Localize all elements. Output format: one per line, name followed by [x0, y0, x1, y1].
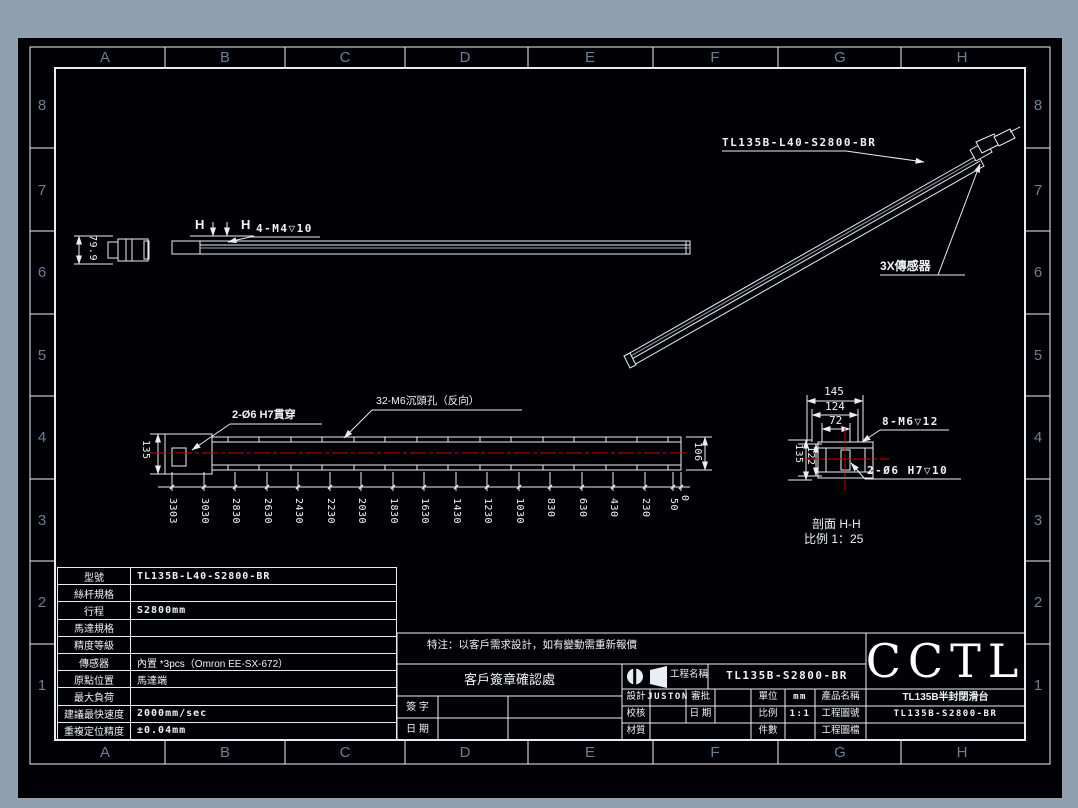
zone-right-6: 6	[1028, 264, 1048, 281]
spec-label: 重複定位精度	[58, 723, 131, 739]
spec-label: 行程	[58, 602, 131, 618]
zone-top-a: A	[95, 49, 115, 66]
zone-right-3: 3	[1028, 512, 1048, 529]
chain-dim: 430	[607, 498, 619, 518]
zone-top-g: G	[830, 49, 850, 66]
table-row: 精度等級	[58, 637, 396, 654]
plan-hole-label: 2-Ø6 H7貫穿	[232, 409, 296, 421]
chain-dim: 2430	[292, 498, 304, 524]
spec-label: 精度等級	[58, 637, 131, 653]
spec-label: 型號	[58, 568, 131, 584]
zone-top-c: C	[335, 49, 355, 66]
spec-value: 內置 *3pcs（Omron EE-SX-672）	[131, 654, 396, 670]
table-row: 重複定位精度±0.04mm	[58, 723, 396, 739]
scale-label: 比例	[751, 706, 785, 723]
spec-value: 2000mm/sec	[131, 706, 396, 722]
design-label: 設計	[622, 689, 650, 706]
zone-bottom-b: B	[215, 744, 235, 761]
unit-label: 單位	[751, 689, 785, 706]
chain-dim: 1830	[387, 498, 399, 524]
drawing-no-value: TL135B-S2800-BR	[866, 706, 1025, 723]
cctl-logo: CCTL	[866, 633, 1025, 689]
table-row: 型號TL135B-L40-S2800-BR	[58, 568, 396, 585]
chain-dim: 0	[678, 495, 690, 502]
scale-value: 1:1	[785, 706, 815, 723]
section-dim-145: 145	[824, 386, 844, 398]
spec-value: TL135B-L40-S2800-BR	[131, 568, 396, 584]
spec-value	[131, 688, 396, 704]
zone-left-1: 1	[32, 677, 52, 694]
zone-top-h: H	[952, 49, 972, 66]
spec-label: 傳感器	[58, 654, 131, 670]
section-caption-scale: 比例 1：25	[804, 533, 863, 546]
section-mark-h-left: H	[195, 218, 204, 232]
chain-dim: 2230	[324, 498, 336, 524]
chain-dim: 630	[576, 498, 588, 518]
project-name-value: TL135B-S2800-BR	[708, 664, 866, 689]
zone-right-8: 8	[1028, 97, 1048, 114]
zone-bottom-a: A	[95, 744, 115, 761]
material-label: 材質	[622, 723, 650, 740]
iso-sensor-label: 3X傳感器	[880, 260, 931, 273]
zone-left-5: 5	[32, 347, 52, 364]
date-label: 日 期	[397, 718, 438, 740]
zone-bottom-g: G	[830, 744, 850, 761]
spec-label: 馬達規格	[58, 620, 131, 636]
section-dim-72: 72	[829, 415, 842, 427]
zone-left-7: 7	[32, 182, 52, 199]
zone-top-e: E	[580, 49, 600, 66]
zone-right-5: 5	[1028, 347, 1048, 364]
table-row: 最大負荷	[58, 688, 396, 705]
designer-name: JUSTON	[650, 689, 686, 706]
spec-value: 馬達端	[131, 671, 396, 687]
chain-dim: 1630	[418, 498, 430, 524]
zone-top-b: B	[215, 49, 235, 66]
chain-dim: 3030	[198, 498, 210, 524]
iso-part-label: TL135B-L40-S2800-BR	[722, 137, 876, 149]
zone-bottom-h: H	[952, 744, 972, 761]
spec-label: 絲杆規格	[58, 585, 131, 601]
table-row: 馬達規格	[58, 620, 396, 637]
chain-dim: 1030	[513, 498, 525, 524]
section-dim-124: 124	[825, 401, 845, 413]
section-dim-135: 135	[792, 444, 804, 464]
check-label: 校核	[622, 706, 650, 723]
drawing-no-label: 工程圖號	[815, 706, 866, 723]
zone-top-d: D	[455, 49, 475, 66]
side-thread-label: 4-M4▽10	[256, 223, 313, 235]
chain-dim: 230	[639, 498, 651, 518]
design-note: 特注：以客戶需求設計，如有變動需重新報價	[427, 640, 637, 652]
table-row: 建議最快速度2000mm/sec	[58, 706, 396, 723]
zone-right-2: 2	[1028, 594, 1048, 611]
zone-bottom-c: C	[335, 744, 355, 761]
cad-viewport[interactable]: A B C D E F G H A B C D E F G H 8 7 6 5 …	[18, 38, 1062, 798]
spec-label: 原點位置	[58, 671, 131, 687]
zone-top-f: F	[705, 49, 725, 66]
customer-sign-title: 客戶簽章確認處	[397, 664, 622, 696]
zone-bottom-e: E	[580, 744, 600, 761]
table-row: 傳感器內置 *3pcs（Omron EE-SX-672）	[58, 654, 396, 671]
spec-label: 建議最快速度	[58, 706, 131, 722]
spec-label: 最大負荷	[58, 688, 131, 704]
plan-counterbore-label: 32-M6沉頭孔（反向）	[376, 396, 479, 408]
spec-value	[131, 637, 396, 653]
chain-dim: 3303	[166, 498, 178, 524]
chain-dim: 2630	[261, 498, 273, 524]
drawing-file-label: 工程圖檔	[815, 723, 866, 740]
section-thread-label: 8-M6▽12	[882, 416, 939, 428]
section-dim-122: 122	[804, 446, 816, 466]
section-mark-h-right: H	[241, 218, 250, 232]
plan-right-dim: 106	[691, 442, 703, 462]
side-height-dim: 79.9	[86, 235, 98, 261]
table-row: 行程S2800mm	[58, 602, 396, 619]
chain-dim: 1430	[450, 498, 462, 524]
approve-label: 審批	[686, 689, 715, 706]
spec-value	[131, 585, 396, 601]
spec-value	[131, 620, 396, 636]
qty-label: 件數	[751, 723, 785, 740]
product-name-label: 產品名稱	[815, 689, 866, 706]
sign-label: 簽 字	[397, 696, 438, 718]
zone-right-7: 7	[1028, 182, 1048, 199]
chain-dim: 1230	[481, 498, 493, 524]
chain-dim: 2030	[355, 498, 367, 524]
zone-left-4: 4	[32, 429, 52, 446]
chain-dim: 830	[544, 498, 556, 518]
zone-bottom-d: D	[455, 744, 475, 761]
zone-left-6: 6	[32, 264, 52, 281]
section-caption-title: 剖面 H-H	[812, 518, 861, 531]
zone-right-4: 4	[1028, 429, 1048, 446]
project-name-label: 工程名稱	[670, 670, 708, 680]
section-pin-label: 2-Ø6 H7▽10	[867, 465, 948, 477]
unit-value: mm	[785, 689, 815, 706]
chain-dim: 2830	[229, 498, 241, 524]
table-row: 原點位置馬達端	[58, 671, 396, 688]
spec-table: 型號TL135B-L40-S2800-BR 絲杆規格 行程S2800mm 馬達規…	[57, 567, 397, 740]
zone-left-2: 2	[32, 594, 52, 611]
spec-value: ±0.04mm	[131, 723, 396, 739]
product-name-value: TL135B半封閉滑台	[866, 689, 1025, 706]
zone-left-8: 8	[32, 97, 52, 114]
spec-value: S2800mm	[131, 602, 396, 618]
zone-bottom-f: F	[705, 744, 725, 761]
titleblock-date-label: 日 期	[686, 706, 715, 723]
zone-left-3: 3	[32, 512, 52, 529]
zone-right-1: 1	[1028, 677, 1048, 694]
table-row: 絲杆規格	[58, 585, 396, 602]
plan-left-dim: 135	[139, 440, 151, 460]
desktop-background: { "zones": { "top": ["A","B","C","D","E"…	[0, 0, 1078, 808]
